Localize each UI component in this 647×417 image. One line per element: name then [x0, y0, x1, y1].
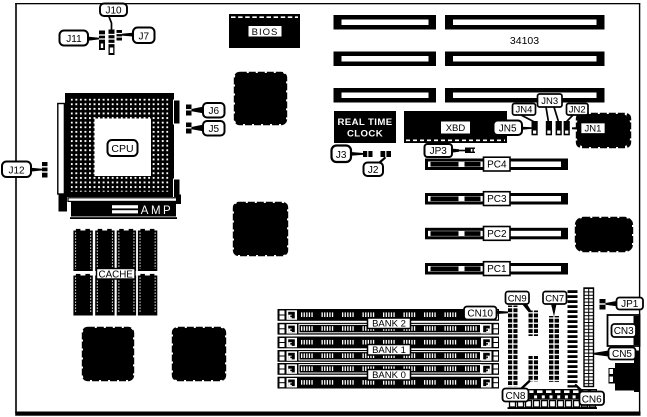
svg-text:CN5: CN5	[612, 349, 632, 360]
svg-text:CACHE: CACHE	[99, 269, 134, 280]
svg-text:PC3: PC3	[487, 194, 507, 205]
svg-text:JP1: JP1	[621, 299, 639, 310]
svg-text:J7: J7	[139, 32, 150, 43]
svg-text:CN10: CN10	[467, 309, 493, 320]
svg-text:J3: J3	[336, 150, 347, 161]
svg-text:CN3: CN3	[614, 326, 634, 337]
svg-text:J11: J11	[66, 34, 82, 45]
svg-text:REAL TIME: REAL TIME	[337, 117, 392, 128]
svg-text:PC1: PC1	[487, 264, 507, 275]
svg-text:34103: 34103	[510, 35, 539, 47]
svg-text:J2: J2	[368, 165, 379, 176]
svg-text:CN9: CN9	[508, 294, 527, 305]
svg-text:JN3: JN3	[541, 96, 558, 107]
svg-text:J10: J10	[105, 6, 122, 17]
svg-text:PC4: PC4	[487, 160, 507, 171]
svg-text:J5: J5	[209, 124, 220, 135]
svg-text:JN1: JN1	[585, 124, 602, 135]
svg-text:BANK 1: BANK 1	[372, 345, 406, 356]
svg-text:JP3: JP3	[430, 146, 448, 157]
svg-text:BANK 0: BANK 0	[372, 370, 406, 381]
svg-text:JN5: JN5	[499, 124, 517, 135]
svg-text:J12: J12	[8, 166, 25, 177]
svg-text:CN8: CN8	[505, 391, 525, 402]
svg-text:PC2: PC2	[487, 229, 507, 240]
svg-text:JN2: JN2	[569, 105, 586, 116]
svg-text:AMP: AMP	[141, 205, 173, 217]
svg-text:CN6: CN6	[582, 394, 602, 405]
svg-text:CLOCK: CLOCK	[347, 128, 383, 139]
svg-text:JN4: JN4	[516, 105, 533, 116]
svg-text:CPU: CPU	[111, 143, 133, 155]
svg-text:BANK 2: BANK 2	[372, 319, 406, 330]
svg-text:BIOS: BIOS	[252, 27, 279, 38]
svg-text:CN7: CN7	[545, 294, 564, 305]
svg-text:XBD: XBD	[446, 123, 466, 134]
svg-text:J6: J6	[209, 106, 220, 117]
